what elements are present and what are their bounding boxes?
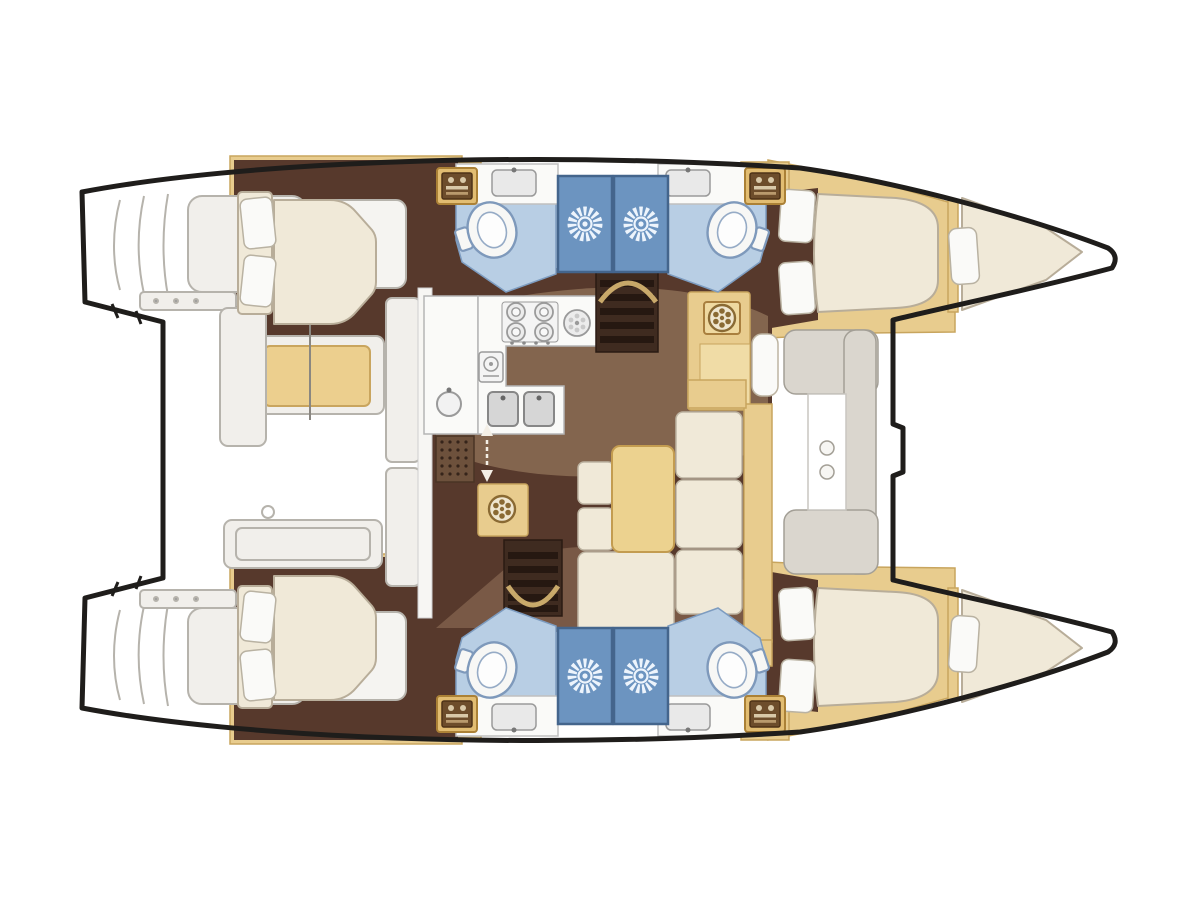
catamaran-floorplan-image — [0, 0, 1200, 900]
pillow — [778, 261, 816, 315]
settee-cushion — [676, 550, 742, 614]
stove-knob — [510, 341, 514, 345]
fitting-dot — [194, 597, 198, 601]
pillow — [239, 196, 276, 249]
fwd-seat-bottom — [784, 510, 878, 574]
fitting-dot — [194, 299, 198, 303]
hanging-locker-icon — [745, 168, 785, 204]
bow-berth-pillow — [948, 227, 980, 285]
settee-cushion-small — [578, 462, 614, 504]
nav-seat-cushion — [752, 334, 778, 396]
cockpit-bench-cushion — [264, 346, 370, 406]
stove-burner-icon — [535, 323, 553, 341]
lower-fwd-mattress — [814, 588, 938, 706]
pillow — [239, 648, 276, 701]
stairs-to-lower-hull — [504, 540, 562, 616]
cockpit-side-panel — [220, 308, 266, 446]
stove-burner-icon — [507, 303, 525, 321]
lower-aft-mattress — [274, 576, 376, 700]
cup-holder — [820, 465, 834, 479]
dinette-cabinet-top — [688, 380, 746, 408]
washer-cabinet — [478, 484, 528, 536]
lower-bow-berth-cushion — [962, 590, 1082, 702]
stairs-to-upper-hull — [596, 268, 658, 352]
dinette-table — [612, 446, 674, 552]
fitting-dot — [174, 597, 178, 601]
stove-burner-icon — [535, 303, 553, 321]
aux-ring-burner-icon — [564, 310, 590, 336]
stove-burner-icon — [507, 323, 525, 341]
hanging-locker-icon — [745, 696, 785, 732]
floorplan-canvas — [0, 0, 1200, 900]
stove-knob — [522, 341, 526, 345]
basin-icon — [666, 170, 710, 196]
basin-icon — [492, 704, 536, 730]
cockpit-locker-panel-upper — [386, 298, 420, 462]
basin-icon — [666, 704, 710, 730]
fitting-dot — [154, 597, 158, 601]
washer-dial-icon — [489, 496, 515, 522]
pillow — [239, 590, 276, 643]
basin-tap — [686, 168, 691, 173]
settee-cushion — [676, 480, 742, 548]
fitting-dot — [174, 299, 178, 303]
hanging-locker-icon — [437, 168, 477, 204]
pillow — [239, 254, 276, 307]
dinette-backrest-right — [744, 404, 772, 642]
transom-fittings — [112, 304, 141, 596]
deck-fitting-ring — [262, 506, 274, 518]
upper-aft-mattress — [274, 200, 376, 324]
upper-fwd-mattress — [814, 194, 938, 312]
oven-dial-unit-icon — [479, 352, 503, 382]
hanging-locker-icon — [437, 696, 477, 732]
stove-knob — [546, 341, 550, 345]
basin-icon — [492, 170, 536, 196]
cup-holder — [820, 441, 834, 455]
appliance-dial-icon — [709, 305, 735, 331]
settee-cushion-small — [578, 508, 614, 550]
settee-cushion — [676, 412, 742, 478]
floor-grate — [436, 436, 474, 482]
basin-tap — [512, 168, 517, 173]
pillow — [778, 587, 816, 641]
fitting-dot — [154, 299, 158, 303]
upper-bow-berth-cushion — [962, 198, 1082, 310]
settee-cushion — [578, 552, 674, 638]
cockpit-locker-panel-lower — [386, 468, 420, 586]
bow-berth-pillow — [948, 615, 980, 673]
basin-tap — [686, 728, 691, 733]
basin-tap — [512, 728, 517, 733]
stove-knob — [534, 341, 538, 345]
